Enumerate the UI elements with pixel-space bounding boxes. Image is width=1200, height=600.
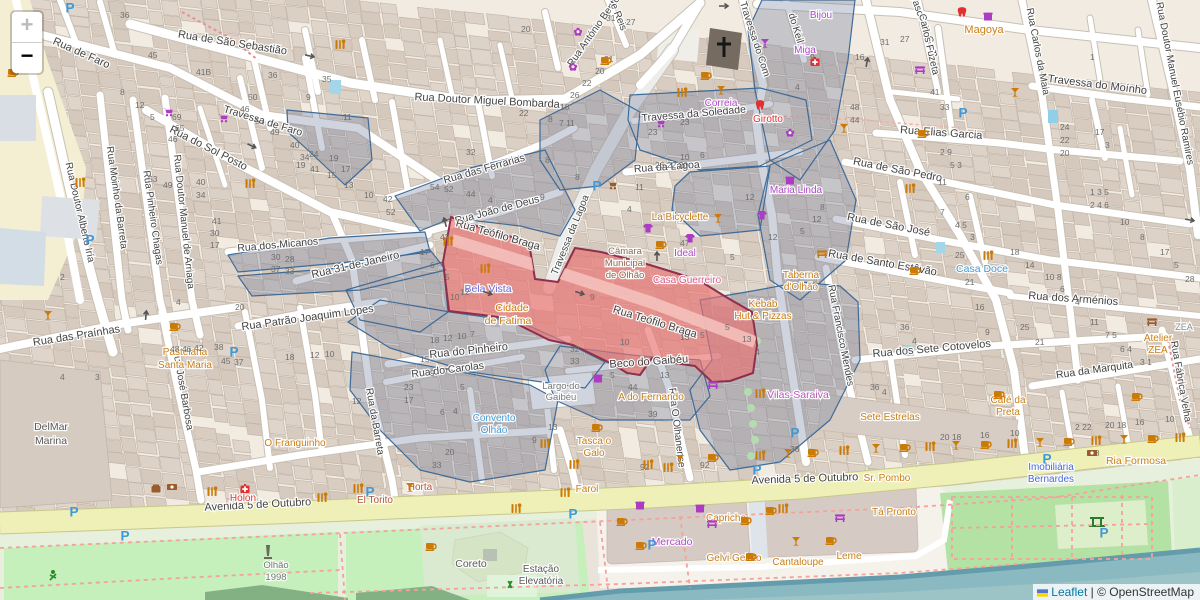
svg-text:2: 2 xyxy=(60,272,65,282)
svg-text:6: 6 xyxy=(440,407,445,417)
svg-text:22: 22 xyxy=(582,78,592,88)
svg-text:Marina: Marina xyxy=(35,435,67,447)
svg-text:13: 13 xyxy=(344,180,354,190)
svg-text:14: 14 xyxy=(1025,260,1035,270)
svg-text:Sr. Pombo: Sr. Pombo xyxy=(864,473,911,484)
svg-text:20 18: 20 18 xyxy=(1105,420,1127,430)
svg-text:Elevatória: Elevatória xyxy=(519,576,564,587)
svg-text:12: 12 xyxy=(135,100,145,110)
svg-text:37: 37 xyxy=(271,264,281,274)
svg-text:4: 4 xyxy=(912,336,917,346)
svg-text:6: 6 xyxy=(965,192,970,202)
svg-text:3 1: 3 1 xyxy=(1140,357,1152,367)
svg-text:53: 53 xyxy=(255,116,265,126)
svg-text:de Fatima: de Fatima xyxy=(485,315,532,327)
svg-text:5: 5 xyxy=(150,112,155,122)
svg-text:18: 18 xyxy=(1010,247,1020,257)
svg-text:52: 52 xyxy=(444,184,454,194)
svg-text:Municipal: Municipal xyxy=(605,258,645,269)
svg-text:5: 5 xyxy=(725,322,730,332)
svg-text:32: 32 xyxy=(466,147,476,157)
svg-text:45: 45 xyxy=(148,50,158,60)
svg-text:10: 10 xyxy=(1165,414,1175,424)
svg-text:19: 19 xyxy=(329,153,339,163)
svg-text:33: 33 xyxy=(940,102,950,112)
svg-text:21: 21 xyxy=(1035,337,1045,347)
svg-text:8: 8 xyxy=(545,155,550,165)
svg-text:7 5: 7 5 xyxy=(1105,330,1117,340)
svg-text:Farol: Farol xyxy=(576,484,599,495)
svg-text:2 9: 2 9 xyxy=(940,147,952,157)
svg-text:20: 20 xyxy=(521,24,531,34)
svg-text:Taberna: Taberna xyxy=(783,270,820,281)
svg-text:12: 12 xyxy=(443,333,453,343)
svg-text:9: 9 xyxy=(306,92,311,102)
svg-text:54: 54 xyxy=(430,182,440,192)
svg-text:Bijou: Bijou xyxy=(810,10,832,21)
svg-text:4: 4 xyxy=(176,297,181,307)
svg-text:10: 10 xyxy=(450,292,460,302)
svg-text:Maria Linda: Maria Linda xyxy=(770,185,823,196)
svg-text:Holon: Holon xyxy=(230,493,256,504)
svg-text:49: 49 xyxy=(163,180,173,190)
svg-text:Tá Pronto: Tá Pronto xyxy=(872,507,916,518)
svg-text:46: 46 xyxy=(240,104,250,114)
svg-text:4: 4 xyxy=(453,406,458,416)
svg-text:Casa Doce: Casa Doce xyxy=(956,263,1008,275)
svg-text:11: 11 xyxy=(938,177,947,187)
svg-text:1998: 1998 xyxy=(265,572,286,583)
svg-text:23: 23 xyxy=(680,117,690,127)
svg-text:2 4 6: 2 4 6 xyxy=(1090,200,1109,210)
svg-text:20: 20 xyxy=(595,66,605,76)
svg-text:30: 30 xyxy=(210,228,220,238)
svg-text:13: 13 xyxy=(680,332,690,342)
svg-text:Kebab: Kebab xyxy=(749,299,778,310)
svg-text:1: 1 xyxy=(1090,52,1095,62)
svg-text:3: 3 xyxy=(1105,140,1110,150)
svg-text:A do Fernando: A do Fernando xyxy=(618,392,684,403)
svg-text:17: 17 xyxy=(210,240,220,250)
svg-text:16: 16 xyxy=(980,430,990,440)
svg-text:3: 3 xyxy=(95,372,100,382)
svg-text:13: 13 xyxy=(660,370,670,380)
svg-text:22: 22 xyxy=(519,108,529,118)
svg-text:Santa Maria: Santa Maria xyxy=(158,360,212,371)
svg-text:12: 12 xyxy=(745,192,755,202)
svg-text:d'Olhão: d'Olhão xyxy=(784,282,819,293)
svg-text:de Olhão: de Olhão xyxy=(606,270,645,281)
svg-text:42: 42 xyxy=(194,343,204,353)
svg-text:40: 40 xyxy=(196,177,206,187)
svg-text:8: 8 xyxy=(548,114,553,124)
svg-text:15: 15 xyxy=(327,170,337,180)
svg-text:5: 5 xyxy=(610,370,615,380)
svg-text:5: 5 xyxy=(700,330,705,340)
svg-text:38: 38 xyxy=(214,342,224,352)
svg-text:65: 65 xyxy=(175,123,185,133)
svg-text:12: 12 xyxy=(460,287,470,297)
svg-text:10: 10 xyxy=(364,190,374,200)
svg-text:5: 5 xyxy=(800,226,805,236)
svg-text:Tasca o: Tasca o xyxy=(577,436,612,447)
svg-text:Correia: Correia xyxy=(705,98,738,109)
svg-text:11: 11 xyxy=(343,112,352,122)
svg-text:20: 20 xyxy=(1060,148,1070,158)
svg-text:26: 26 xyxy=(570,90,580,100)
svg-text:7: 7 xyxy=(940,207,945,217)
svg-text:17: 17 xyxy=(420,247,430,257)
svg-text:9: 9 xyxy=(590,292,595,302)
svg-text:Ria Formosa: Ria Formosa xyxy=(1106,455,1166,467)
svg-text:13: 13 xyxy=(548,422,558,432)
svg-text:ZEA: ZEA xyxy=(1175,322,1193,332)
svg-text:10: 10 xyxy=(620,337,630,347)
svg-text:4: 4 xyxy=(627,204,632,214)
svg-text:33: 33 xyxy=(285,266,295,276)
svg-text:12: 12 xyxy=(812,214,822,224)
svg-text:13: 13 xyxy=(742,334,752,344)
svg-text:10: 10 xyxy=(457,331,467,341)
svg-text:17: 17 xyxy=(1160,247,1170,257)
svg-text:39: 39 xyxy=(648,409,658,419)
svg-text:4: 4 xyxy=(795,82,800,92)
svg-text:28: 28 xyxy=(1185,274,1195,284)
svg-text:49: 49 xyxy=(270,127,280,137)
svg-text:36: 36 xyxy=(120,10,130,20)
svg-text:6: 6 xyxy=(430,260,435,270)
svg-text:11: 11 xyxy=(1090,317,1099,327)
svg-text:44: 44 xyxy=(466,189,476,199)
svg-text:36: 36 xyxy=(268,70,278,80)
svg-text:La Bicyclette: La Bicyclette xyxy=(652,212,709,223)
svg-text:12: 12 xyxy=(768,232,778,242)
svg-text:ZEA: ZEA xyxy=(1148,345,1168,356)
svg-text:36: 36 xyxy=(870,382,880,392)
svg-text:Sete Estrelas: Sete Estrelas xyxy=(860,412,919,423)
svg-text:4: 4 xyxy=(488,195,493,205)
svg-text:9: 9 xyxy=(985,327,990,337)
svg-text:Bernardes: Bernardes xyxy=(1028,474,1074,485)
svg-text:52: 52 xyxy=(386,207,396,217)
svg-text:8: 8 xyxy=(575,172,580,182)
svg-text:Mercado: Mercado xyxy=(652,536,693,548)
svg-text:24: 24 xyxy=(309,149,319,159)
svg-text:1 3 5: 1 3 5 xyxy=(1090,187,1109,197)
svg-text:9: 9 xyxy=(540,192,545,202)
svg-text:Hut & Pizzas: Hut & Pizzas xyxy=(734,311,791,322)
svg-text:Convento: Convento xyxy=(473,413,516,424)
svg-text:12: 12 xyxy=(310,350,320,360)
svg-text:48: 48 xyxy=(850,102,860,112)
svg-text:34: 34 xyxy=(300,152,310,162)
svg-text:Preta: Preta xyxy=(996,407,1020,418)
svg-text:Coreto: Coreto xyxy=(455,558,487,570)
svg-text:30: 30 xyxy=(271,252,281,262)
svg-text:Olhão: Olhão xyxy=(481,425,508,436)
svg-text:4: 4 xyxy=(60,372,65,382)
svg-text:17: 17 xyxy=(404,395,414,405)
svg-text:Atelier: Atelier xyxy=(1144,333,1173,344)
svg-text:11: 11 xyxy=(635,182,644,192)
svg-text:25: 25 xyxy=(955,250,965,260)
svg-text:28: 28 xyxy=(285,254,295,264)
svg-text:35: 35 xyxy=(322,74,332,84)
svg-text:17: 17 xyxy=(1095,127,1105,137)
svg-text:DelMar: DelMar xyxy=(34,421,68,433)
svg-text:12: 12 xyxy=(352,396,362,406)
svg-text:16: 16 xyxy=(975,302,985,312)
svg-text:5: 5 xyxy=(730,252,735,262)
svg-text:Olhão: Olhão xyxy=(263,560,288,571)
svg-text:10: 10 xyxy=(1010,428,1020,438)
svg-text:41B: 41B xyxy=(196,67,211,77)
svg-text:41: 41 xyxy=(930,87,940,97)
svg-text:25: 25 xyxy=(1020,322,1030,332)
svg-text:20: 20 xyxy=(445,447,455,457)
svg-text:50: 50 xyxy=(248,92,258,102)
svg-text:27: 27 xyxy=(900,34,910,44)
svg-text:7: 7 xyxy=(444,366,449,376)
svg-text:41: 41 xyxy=(212,216,222,226)
svg-text:31: 31 xyxy=(880,37,890,47)
svg-text:O Franguinho: O Franguinho xyxy=(264,438,326,449)
svg-text:8: 8 xyxy=(820,202,825,212)
svg-text:El Torito: El Torito xyxy=(357,495,393,506)
svg-text:6: 6 xyxy=(700,150,705,160)
svg-text:9: 9 xyxy=(532,435,537,445)
svg-text:6: 6 xyxy=(1060,284,1065,294)
svg-text:22: 22 xyxy=(1060,135,1070,145)
svg-text:Leme: Leme xyxy=(836,551,861,562)
svg-text:69: 69 xyxy=(172,112,182,122)
svg-text:27: 27 xyxy=(626,17,636,27)
svg-text:Câmara: Câmara xyxy=(608,246,643,257)
svg-text:Casa Guerreiro: Casa Guerreiro xyxy=(653,275,722,286)
svg-text:4: 4 xyxy=(1075,297,1080,307)
svg-text:Largo do: Largo do xyxy=(542,381,580,392)
svg-text:Girotto: Girotto xyxy=(753,114,783,125)
svg-text:21: 21 xyxy=(965,277,975,287)
svg-text:15: 15 xyxy=(420,354,430,364)
svg-text:40: 40 xyxy=(290,140,300,150)
svg-text:44: 44 xyxy=(628,382,638,392)
svg-text:5 3: 5 3 xyxy=(950,160,962,170)
svg-text:31: 31 xyxy=(606,13,616,23)
svg-text:4 5: 4 5 xyxy=(955,220,967,230)
svg-text:24: 24 xyxy=(1060,122,1070,132)
svg-text:5: 5 xyxy=(1174,260,1179,270)
svg-text:32: 32 xyxy=(570,344,580,354)
svg-text:Estação: Estação xyxy=(523,564,560,575)
svg-text:Magoya: Magoya xyxy=(964,24,1004,36)
svg-text:26 22 20: 26 22 20 xyxy=(655,160,688,170)
svg-text:10 8: 10 8 xyxy=(1045,272,1062,282)
svg-text:Cidade: Cidade xyxy=(495,302,528,314)
svg-text:5: 5 xyxy=(445,272,450,282)
svg-text:34: 34 xyxy=(196,190,206,200)
svg-text:7: 7 xyxy=(470,329,475,339)
svg-text:8: 8 xyxy=(120,87,125,97)
svg-text:9: 9 xyxy=(430,368,435,378)
svg-text:17: 17 xyxy=(341,164,351,174)
svg-text:46: 46 xyxy=(182,344,192,354)
svg-text:Cantaloupe: Cantaloupe xyxy=(772,557,824,568)
svg-text:4: 4 xyxy=(882,387,887,397)
svg-text:10: 10 xyxy=(1120,217,1130,227)
svg-text:6 4: 6 4 xyxy=(1120,344,1132,354)
svg-text:2 22: 2 22 xyxy=(1075,422,1092,432)
svg-text:Gaibéu: Gaibéu xyxy=(546,392,577,403)
svg-text:4: 4 xyxy=(755,347,760,357)
svg-text:16: 16 xyxy=(1135,417,1145,427)
svg-text:23: 23 xyxy=(404,382,414,392)
svg-text:46: 46 xyxy=(168,134,178,144)
svg-text:33: 33 xyxy=(570,356,580,366)
svg-text:8: 8 xyxy=(1140,232,1145,242)
svg-text:18: 18 xyxy=(285,352,295,362)
svg-text:Galo: Galo xyxy=(583,448,605,459)
svg-text:18: 18 xyxy=(430,335,440,345)
svg-text:10: 10 xyxy=(325,349,335,359)
svg-text:3: 3 xyxy=(970,232,975,242)
svg-text:Ideal: Ideal xyxy=(674,248,696,259)
svg-text:48: 48 xyxy=(170,344,180,354)
svg-text:53: 53 xyxy=(148,174,158,184)
svg-text:23: 23 xyxy=(648,127,658,137)
svg-text:44: 44 xyxy=(850,115,860,125)
svg-text:7 11: 7 11 xyxy=(559,118,575,128)
svg-text:41: 41 xyxy=(310,164,320,174)
svg-text:20 18: 20 18 xyxy=(940,432,962,442)
svg-text:5: 5 xyxy=(460,382,465,392)
svg-text:36: 36 xyxy=(900,322,910,332)
svg-text:Vilas-Saraiva: Vilas-Saraiva xyxy=(767,389,829,401)
svg-text:18: 18 xyxy=(560,102,570,112)
svg-text:20: 20 xyxy=(235,302,245,312)
svg-text:16: 16 xyxy=(855,52,865,62)
svg-text:33: 33 xyxy=(432,460,442,470)
svg-text:42: 42 xyxy=(383,194,393,204)
